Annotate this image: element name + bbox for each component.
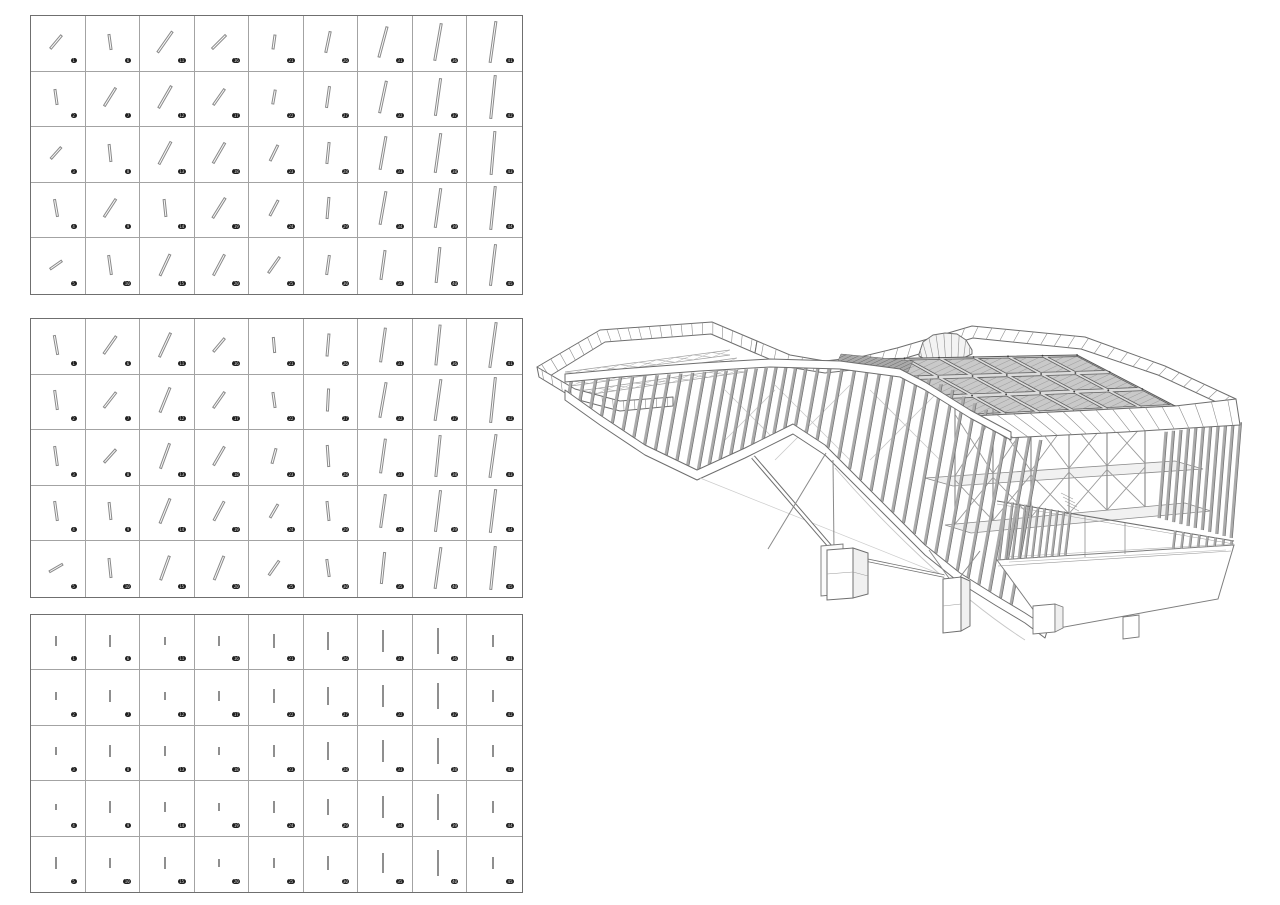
slat-index-badge: 45 — [506, 281, 514, 286]
slat-cell: 24 — [249, 183, 304, 239]
slat-index-badge: 39 — [451, 224, 459, 229]
slat-index-badge: 39 — [451, 823, 459, 828]
slat-stick — [378, 81, 388, 114]
slat-cell: 44 — [467, 781, 522, 836]
slat-cell: 21 — [249, 319, 304, 375]
slat-stick — [434, 246, 441, 282]
slat-stick — [269, 144, 280, 161]
slat-stick — [164, 746, 166, 756]
slat-index-badge: 9 — [125, 527, 131, 532]
slat-cell: 36 — [413, 615, 468, 670]
slat-stick — [55, 857, 57, 869]
slat-stick — [326, 333, 331, 356]
slat-cell: 11 — [140, 319, 195, 375]
slat-stick — [218, 691, 220, 701]
slat-stick — [164, 637, 166, 645]
slat-cell: 18 — [195, 726, 250, 781]
slat-cell: 25 — [249, 541, 304, 597]
slat-cell: 20 — [195, 837, 250, 892]
slat-index-badge: 15 — [178, 879, 186, 884]
slat-cell: 19 — [195, 183, 250, 239]
slat-index-badge: 5 — [71, 879, 77, 884]
pavilion-axonometric-drawing — [525, 310, 1265, 655]
slat-cell: 37 — [413, 72, 468, 128]
slat-cell: 18 — [195, 127, 250, 183]
slat-cell: 44 — [467, 486, 522, 542]
slat-stick — [53, 390, 59, 410]
slat-cell: 38 — [413, 127, 468, 183]
slat-stick — [53, 199, 59, 217]
slat-stick — [269, 504, 280, 519]
slat-cell: 14 — [140, 781, 195, 836]
slat-index-badge: 7 — [125, 113, 131, 118]
slat-cell: 12 — [140, 72, 195, 128]
slat-stick — [49, 259, 63, 270]
slat-cell: 16 — [195, 615, 250, 670]
slat-stick — [49, 34, 63, 50]
slat-index-badge: 35 — [396, 879, 404, 884]
slat-index-badge: 27 — [342, 416, 350, 421]
slat-stick — [378, 382, 387, 418]
slat-cell: 9 — [86, 486, 141, 542]
slat-cell: 22 — [249, 72, 304, 128]
slat-index-badge: 45 — [506, 584, 514, 589]
slat-stick — [55, 636, 57, 646]
slat-stick — [273, 858, 275, 868]
slat-stick — [108, 34, 113, 50]
slat-cell: 13 — [140, 127, 195, 183]
slat-index-badge: 2 — [71, 113, 77, 118]
slat-cell: 34 — [358, 486, 413, 542]
slat-stick — [212, 88, 226, 106]
slat-cell: 26 — [304, 615, 359, 670]
slat-stick — [157, 141, 172, 165]
slat-cell: 36 — [413, 319, 468, 375]
slat-cell: 11 — [140, 615, 195, 670]
slat-stick — [109, 858, 111, 868]
slat-cell: 27 — [304, 670, 359, 725]
slat-index-badge: 13 — [178, 472, 186, 477]
slat-stick — [488, 21, 497, 63]
slat-index-badge: 37 — [451, 416, 459, 421]
slat-cell: 39 — [413, 486, 468, 542]
slat-stick — [212, 142, 227, 164]
slat-stick — [268, 200, 279, 217]
slat-index-badge: 4 — [71, 527, 77, 532]
slat-index-badge: 23 — [287, 472, 295, 477]
slat-stick — [212, 337, 226, 353]
slat-index-badge: 5 — [71, 584, 77, 589]
slat-index-badge: 15 — [178, 281, 186, 286]
slat-cell: 26 — [304, 319, 359, 375]
slat-stick — [325, 31, 333, 53]
slat-index-badge: 40 — [451, 281, 459, 286]
slat-cell: 23 — [249, 726, 304, 781]
slat-stick — [164, 857, 166, 869]
slat-index-badge: 32 — [396, 416, 404, 421]
slat-cell: 6 — [86, 319, 141, 375]
slat-index-badge: 14 — [178, 823, 186, 828]
slat-stick — [55, 804, 57, 810]
slat-index-badge: 18 — [232, 767, 240, 772]
slat-index-badge: 29 — [342, 224, 350, 229]
slat-index-badge: 21 — [287, 656, 295, 661]
slat-stick — [437, 683, 439, 709]
slat-cell: 41 — [467, 319, 522, 375]
slat-cell: 20 — [195, 238, 250, 294]
slat-index-badge: 6 — [125, 361, 131, 366]
slat-cell: 31 — [358, 319, 413, 375]
slat-index-badge: 10 — [123, 584, 131, 589]
slat-cell: 2 — [31, 375, 86, 431]
slat-index-badge: 30 — [342, 584, 350, 589]
slat-cell: 10 — [86, 238, 141, 294]
slat-cell: 13 — [140, 430, 195, 486]
slat-index-badge: 9 — [125, 224, 131, 229]
slat-cell: 33 — [358, 726, 413, 781]
slat-stick — [109, 801, 111, 813]
slat-cell: 15 — [140, 238, 195, 294]
slat-index-badge: 10 — [123, 281, 131, 286]
slat-stick — [49, 146, 62, 160]
slat-cell: 19 — [195, 486, 250, 542]
slat-cell: 7 — [86, 670, 141, 725]
slat-stick — [273, 689, 275, 703]
slat-index-badge: 41 — [506, 656, 514, 661]
slat-index-badge: 10 — [123, 879, 131, 884]
slat-index-badge: 21 — [287, 361, 295, 366]
slat-index-badge: 6 — [125, 656, 131, 661]
slat-index-badge: 20 — [232, 879, 240, 884]
slat-stick — [326, 254, 332, 274]
slat-index-badge: 31 — [396, 58, 404, 63]
slat-index-badge: 34 — [396, 823, 404, 828]
slat-index-badge: 22 — [287, 712, 295, 717]
slat-cell: 1 — [31, 319, 86, 375]
slat-cell: 34 — [358, 183, 413, 239]
slat-index-badge: 30 — [342, 879, 350, 884]
slat-index-badge: 25 — [287, 879, 295, 884]
slat-index-badge: 42 — [506, 416, 514, 421]
slat-index-badge: 26 — [342, 656, 350, 661]
slat-stick — [327, 856, 329, 870]
slat-stick — [433, 23, 443, 61]
slat-stick — [433, 547, 442, 589]
slat-index-badge: 28 — [342, 767, 350, 772]
slat-stick — [325, 86, 331, 108]
slat-stick — [109, 690, 111, 702]
slat-cell: 43 — [467, 430, 522, 486]
slat-stick — [488, 322, 497, 368]
slat-stick — [218, 803, 220, 811]
slat-cell: 27 — [304, 375, 359, 431]
slat-cell: 42 — [467, 670, 522, 725]
slat-index-badge: 2 — [71, 712, 77, 717]
slat-cell: 8 — [86, 726, 141, 781]
slat-cell: 19 — [195, 781, 250, 836]
slat-stick — [327, 742, 329, 760]
slat-index-badge: 38 — [451, 472, 459, 477]
slat-index-badge: 2 — [71, 416, 77, 421]
slat-cell: 2 — [31, 670, 86, 725]
slat-cell: 28 — [304, 430, 359, 486]
slat-index-badge: 12 — [178, 712, 186, 717]
slat-cell: 15 — [140, 837, 195, 892]
slat-stick — [492, 857, 494, 869]
slat-index-badge: 45 — [506, 879, 514, 884]
slat-index-badge: 27 — [342, 113, 350, 118]
slat-cell: 35 — [358, 238, 413, 294]
slat-cell: 15 — [140, 541, 195, 597]
slat-stick — [213, 501, 226, 522]
slat-stick — [433, 133, 442, 173]
slat-cell: 40 — [413, 238, 468, 294]
slat-cell: 4 — [31, 781, 86, 836]
slat-stick — [158, 498, 171, 524]
slat-stick — [103, 448, 117, 463]
slat-stick — [492, 690, 494, 702]
slat-cell: 3 — [31, 726, 86, 781]
slat-cell: 21 — [249, 615, 304, 670]
slat-index-badge: 3 — [71, 169, 77, 174]
slat-index-badge: 21 — [287, 58, 295, 63]
slat-index-badge: 44 — [506, 527, 514, 532]
slat-cell: 43 — [467, 726, 522, 781]
slat-index-badge: 43 — [506, 169, 514, 174]
slat-cell: 18 — [195, 430, 250, 486]
slat-stick — [159, 555, 171, 580]
slat-cell: 45 — [467, 541, 522, 597]
slat-cell: 40 — [413, 541, 468, 597]
slat-stick — [53, 89, 58, 105]
slat-stick — [327, 632, 329, 650]
slat-cell: 1 — [31, 16, 86, 72]
slat-stick — [273, 634, 275, 648]
slat-index-badge: 3 — [71, 472, 77, 477]
slat-cell: 35 — [358, 541, 413, 597]
slat-stick — [379, 136, 388, 170]
slat-index-badge: 19 — [232, 527, 240, 532]
slat-stick — [108, 502, 113, 520]
slat-stick — [109, 635, 111, 647]
slat-stick — [326, 197, 331, 219]
slat-stick — [326, 501, 331, 521]
slat-stick — [271, 34, 276, 49]
slat-stick — [218, 747, 220, 755]
slat-cell: 3 — [31, 127, 86, 183]
slat-index-badge: 16 — [232, 58, 240, 63]
slat-stick — [162, 199, 167, 217]
slat-index-badge: 43 — [506, 472, 514, 477]
slat-index-badge: 16 — [232, 361, 240, 366]
slat-index-badge: 23 — [287, 169, 295, 174]
slat-index-badge: 24 — [287, 527, 295, 532]
slat-index-badge: 38 — [451, 767, 459, 772]
slat-cell: 29 — [304, 183, 359, 239]
slat-cell: 45 — [467, 837, 522, 892]
slat-index-badge: 7 — [125, 712, 131, 717]
parametric-study-sheet: { "page": { "description": "Facade slat … — [0, 0, 1280, 905]
slat-index-badge: 16 — [232, 656, 240, 661]
slat-stick — [108, 557, 113, 577]
slat-index-badge: 24 — [287, 224, 295, 229]
slat-cell: 31 — [358, 16, 413, 72]
slat-index-badge: 28 — [342, 472, 350, 477]
slat-index-badge: 17 — [232, 712, 240, 717]
slat-cell: 16 — [195, 319, 250, 375]
slat-cell: 32 — [358, 670, 413, 725]
slat-cell: 7 — [86, 375, 141, 431]
slat-stick — [437, 628, 439, 654]
slat-index-badge: 24 — [287, 823, 295, 828]
slat-stick — [53, 501, 59, 521]
slat-index-badge: 18 — [232, 472, 240, 477]
slat-stick — [379, 191, 388, 225]
slat-stick — [109, 745, 111, 757]
slat-cell: 2 — [31, 72, 86, 128]
slat-stick — [327, 799, 329, 815]
slat-stick — [103, 198, 117, 218]
slat-stick — [379, 438, 387, 473]
slat-stick — [492, 801, 494, 813]
slat-cell: 23 — [249, 127, 304, 183]
slat-index-badge: 1 — [71, 361, 77, 366]
rotation-study-grid-1: 1611162126313641271217222732374238131823… — [30, 15, 523, 295]
slat-cell: 33 — [358, 430, 413, 486]
slat-stick — [158, 332, 172, 358]
slat-index-badge: 14 — [178, 527, 186, 532]
slat-cell: 34 — [358, 781, 413, 836]
slat-index-badge: 22 — [287, 113, 295, 118]
slat-cell: 17 — [195, 670, 250, 725]
slat-cell: 45 — [467, 238, 522, 294]
slat-index-badge: 35 — [396, 281, 404, 286]
slat-stick — [379, 249, 386, 279]
slat-cell: 32 — [358, 375, 413, 431]
slat-cell: 28 — [304, 726, 359, 781]
slat-index-badge: 11 — [178, 361, 186, 366]
slat-cell: 30 — [304, 541, 359, 597]
slat-index-badge: 18 — [232, 169, 240, 174]
slat-index-badge: 22 — [287, 416, 295, 421]
slat-cell: 17 — [195, 375, 250, 431]
timber-fins-right-facade — [1159, 422, 1242, 538]
slat-index-badge: 42 — [506, 113, 514, 118]
slat-index-badge: 32 — [396, 113, 404, 118]
slat-stick — [379, 494, 387, 528]
slat-stick — [434, 435, 441, 477]
slat-stick — [433, 188, 442, 228]
slat-stick — [270, 448, 277, 464]
slat-index-badge: 8 — [125, 767, 131, 772]
slat-stick — [488, 243, 496, 285]
slat-cell: 43 — [467, 127, 522, 183]
slat-cell: 29 — [304, 781, 359, 836]
slat-index-badge: 25 — [287, 281, 295, 286]
slat-index-badge: 26 — [342, 361, 350, 366]
slat-index-badge: 40 — [451, 584, 459, 589]
slat-stick — [212, 197, 227, 219]
slat-cell: 23 — [249, 430, 304, 486]
slat-stick — [164, 802, 166, 812]
slat-index-badge: 36 — [451, 361, 459, 366]
slat-cell: 25 — [249, 238, 304, 294]
slat-stick — [326, 142, 331, 164]
slat-cell: 28 — [304, 127, 359, 183]
slat-index-badge: 44 — [506, 224, 514, 229]
slat-stick — [492, 745, 494, 757]
slat-index-badge: 33 — [396, 169, 404, 174]
slat-stick — [158, 253, 171, 276]
slat-stick — [212, 446, 226, 467]
slat-stick — [271, 90, 277, 105]
slat-stick — [212, 253, 226, 276]
slat-cell: 24 — [249, 781, 304, 836]
slat-index-badge: 4 — [71, 823, 77, 828]
slat-index-badge: 9 — [125, 823, 131, 828]
slat-index-badge: 26 — [342, 58, 350, 63]
pylon-left — [827, 548, 853, 600]
slat-stick — [433, 78, 441, 116]
slat-cell: 37 — [413, 670, 468, 725]
slat-cell: 42 — [467, 375, 522, 431]
slat-cell: 6 — [86, 615, 141, 670]
slat-stick — [382, 740, 384, 762]
slat-stick — [379, 327, 387, 362]
slat-cell: 40 — [413, 837, 468, 892]
slat-cell: 4 — [31, 183, 86, 239]
slat-stick — [382, 630, 384, 652]
slat-index-badge: 11 — [178, 656, 186, 661]
slat-stick — [488, 489, 496, 533]
slat-cell: 1 — [31, 615, 86, 670]
slat-stick — [103, 391, 118, 409]
slat-index-badge: 19 — [232, 823, 240, 828]
slat-cell: 4 — [31, 486, 86, 542]
slat-index-badge: 40 — [451, 879, 459, 884]
slat-cell: 12 — [140, 670, 195, 725]
slat-stick — [103, 335, 118, 355]
slat-stick — [267, 559, 280, 575]
slat-index-badge: 37 — [451, 712, 459, 717]
slat-cell: 30 — [304, 238, 359, 294]
slat-cell: 5 — [31, 238, 86, 294]
slat-index-badge: 20 — [232, 281, 240, 286]
slat-cell: 35 — [358, 837, 413, 892]
slat-stick — [218, 859, 220, 867]
slat-stick — [489, 131, 496, 175]
slat-index-badge: 36 — [451, 656, 459, 661]
slat-index-badge: 1 — [71, 656, 77, 661]
slat-stick — [108, 144, 113, 162]
slat-index-badge: 37 — [451, 113, 459, 118]
slat-cell: 39 — [413, 781, 468, 836]
slat-stick — [382, 796, 384, 818]
slat-stick — [273, 801, 275, 813]
slat-cell: 3 — [31, 430, 86, 486]
slat-cell: 10 — [86, 837, 141, 892]
slat-cell: 32 — [358, 72, 413, 128]
slat-index-badge: 39 — [451, 527, 459, 532]
slat-index-badge: 3 — [71, 767, 77, 772]
slat-index-badge: 27 — [342, 712, 350, 717]
slat-stick — [272, 337, 276, 353]
slat-cell: 38 — [413, 430, 468, 486]
slat-stick — [55, 692, 57, 700]
slat-index-badge: 13 — [178, 169, 186, 174]
slat-stick — [437, 794, 439, 820]
slat-index-badge: 12 — [178, 113, 186, 118]
